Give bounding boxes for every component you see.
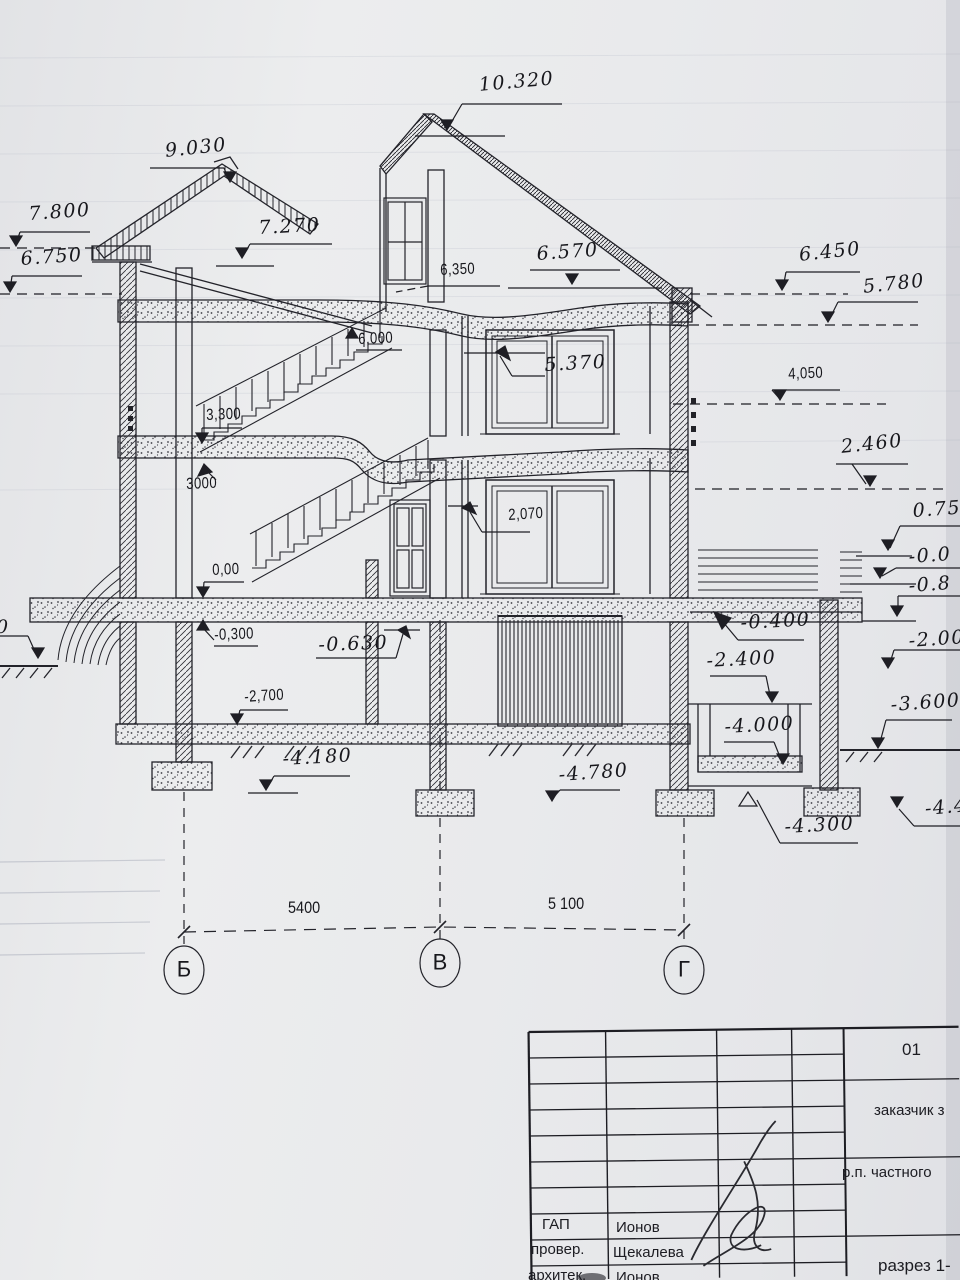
titleblock-location: р.п. частного <box>842 1164 932 1181</box>
titleblock-name-gap: Ионов <box>616 1219 660 1236</box>
axis-v-column <box>430 622 446 790</box>
scan-edge-lines <box>0 860 165 955</box>
slab-level-0 <box>30 598 862 622</box>
elevation-label-6350: 6,350 <box>440 261 475 280</box>
main-roof-left-slope <box>380 114 432 174</box>
dimension-label-right: 5 100 <box>548 894 584 914</box>
dimension-label-left: 5400 <box>288 898 320 918</box>
elevation-label-4050: 4,050 <box>788 365 823 384</box>
titleblock-name-architect: Ионов <box>616 1269 660 1280</box>
elevation-label-neg00: -0.0 <box>908 543 952 568</box>
titleblock-role-checker: провер. <box>531 1241 584 1258</box>
basement-slab <box>116 724 690 744</box>
elevation-label-neg200: -2.00 <box>908 626 960 652</box>
right-retaining-wall <box>820 600 838 790</box>
elevation-label-neg08: -0.8 <box>908 572 952 597</box>
axis-letter-g: Г <box>678 956 690 982</box>
elevation-label-2070: 2,070 <box>508 505 544 525</box>
titleblock-client: заказчик з <box>874 1102 944 1119</box>
axis-letter-v: В <box>433 949 448 975</box>
building-section <box>0 114 960 816</box>
elevation-label-neg4300: -4.300 <box>784 812 855 838</box>
titleblock-role-gap: ГАП <box>542 1216 570 1233</box>
main-roof-right-slope <box>424 114 700 314</box>
elevation-label-neg4180: -4.180 <box>282 744 353 770</box>
title-block <box>529 1027 960 1280</box>
axis-g-wall <box>670 302 688 598</box>
elevation-label-5370: 5.370 <box>544 351 607 376</box>
elevation-label-neg2400: -2.400 <box>706 646 777 672</box>
garage-door <box>498 616 622 726</box>
elevation-label-075: 0.75 <box>912 497 960 522</box>
elevation-label-neg0400: -0.400 <box>740 608 811 634</box>
left-eaves <box>92 246 150 260</box>
stairs-upper-flight <box>196 308 392 452</box>
elevation-label-6750: 6.750 <box>20 244 83 270</box>
signature-scribble <box>690 1121 778 1266</box>
titleblock-name-checker: Щекалева <box>613 1244 684 1261</box>
elevation-label-neg0300: -0,300 <box>214 625 254 645</box>
blueprint-page: 10.320 9.030 7.800 7.270 6.750 6,350 6.5… <box>0 0 960 1280</box>
slab-level-6000 <box>118 300 688 339</box>
elevation-label-neg0630: -0.630 <box>318 632 389 656</box>
elevation-label-6000: 6,000 <box>358 330 393 349</box>
titleblock-drawing-title: разрез 1- <box>878 1256 951 1276</box>
elevation-label-7800: 7.800 <box>28 199 91 225</box>
axis-v-column-upper <box>428 170 444 302</box>
elevation-label-000: 0,00 <box>212 561 240 580</box>
titleblock-sheet-number: 01 <box>902 1040 921 1060</box>
titleblock-role-architect: архитек. <box>528 1267 586 1280</box>
elevation-label-neg2700: -2,700 <box>244 686 284 707</box>
window-upper <box>480 330 620 434</box>
annex-slats <box>698 550 862 592</box>
window-lower <box>480 480 620 594</box>
window-dormer <box>384 198 426 284</box>
elevation-label-3300: 3,300 <box>206 406 241 425</box>
elevation-label-7270: 7.270 <box>258 214 321 239</box>
elevation-label-left-partial: 0 <box>0 616 10 638</box>
elevation-label-6570: 6.570 <box>536 239 599 265</box>
elevation-label-neg44: -4.4 <box>924 794 960 820</box>
door <box>390 500 430 596</box>
elevation-label-neg4000: -4.000 <box>724 712 795 738</box>
ground-right <box>840 750 960 762</box>
section-drawing <box>0 0 960 1280</box>
axis-letter-b: Б <box>177 956 191 982</box>
dimension-label-3000: 3000 <box>186 475 217 494</box>
